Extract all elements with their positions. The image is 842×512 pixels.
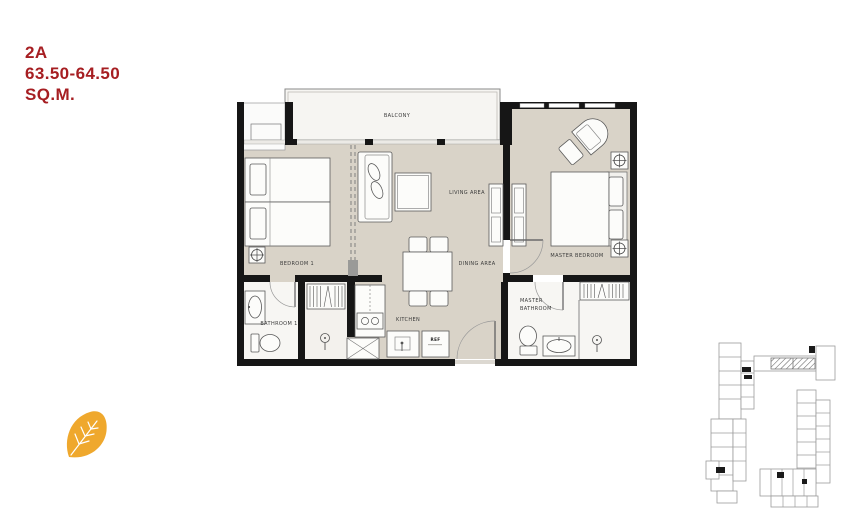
key-plan-building-outline	[706, 343, 835, 507]
ac-diffuser-icon	[249, 247, 265, 263]
toilet	[251, 334, 280, 352]
wardrobe	[580, 282, 629, 300]
dining-chair	[409, 237, 427, 252]
dresser	[512, 184, 526, 246]
balcony-label: BALCONY	[384, 113, 411, 119]
dining-area-label: DINING AREA	[458, 261, 495, 267]
tv-cabinet	[489, 184, 503, 246]
master-bed	[551, 172, 627, 246]
toilet	[520, 326, 538, 355]
refrigerator-label: REF	[431, 337, 441, 342]
dining-chair	[409, 291, 427, 306]
master-bathroom-sink	[543, 336, 575, 356]
master-bedroom-label: MASTER BEDROOM	[550, 253, 603, 259]
balcony-sliding-doors	[244, 139, 500, 145]
leaf-icon	[62, 408, 110, 462]
ac-diffuser-icon	[611, 152, 628, 169]
dining-chair	[430, 237, 448, 252]
floor-plan-drawing: BALCONY	[237, 88, 637, 368]
bathroom1-sink	[245, 291, 265, 324]
building-key-plan	[703, 333, 838, 509]
master-bathroom-label-line2: BATHROOM	[520, 306, 552, 312]
coffee-table	[395, 173, 431, 211]
balcony: BALCONY	[285, 89, 500, 140]
unit-number: 2A	[25, 42, 120, 63]
refrigerator: REF	[422, 331, 449, 357]
bathroom1-label: BATHROOM 1	[260, 321, 297, 327]
wardrobe	[307, 284, 345, 309]
unit-2a-location-marker	[771, 358, 815, 369]
utility-shaft	[347, 338, 379, 359]
dining-table	[403, 252, 452, 291]
dining-chair	[430, 291, 448, 306]
bedroom1-label: BEDROOM 1	[280, 261, 314, 267]
kitchen-sink	[387, 331, 419, 357]
kitchen-label: KITCHEN	[396, 317, 420, 323]
unit-area-range: 63.50-64.50	[25, 63, 120, 84]
unit-title-block: 2A 63.50-64.50 SQ.M.	[25, 42, 120, 105]
floorplan-page: 2A 63.50-64.50 SQ.M. BALCONY	[0, 0, 842, 512]
master-bathroom-label-line1: MASTER	[520, 298, 543, 304]
stove	[357, 313, 383, 329]
living-area-label: LIVING AREA	[449, 190, 485, 196]
sofa	[358, 152, 392, 222]
unit-area-suffix: SQ.M.	[25, 84, 120, 105]
ac-diffuser-icon	[611, 240, 628, 257]
